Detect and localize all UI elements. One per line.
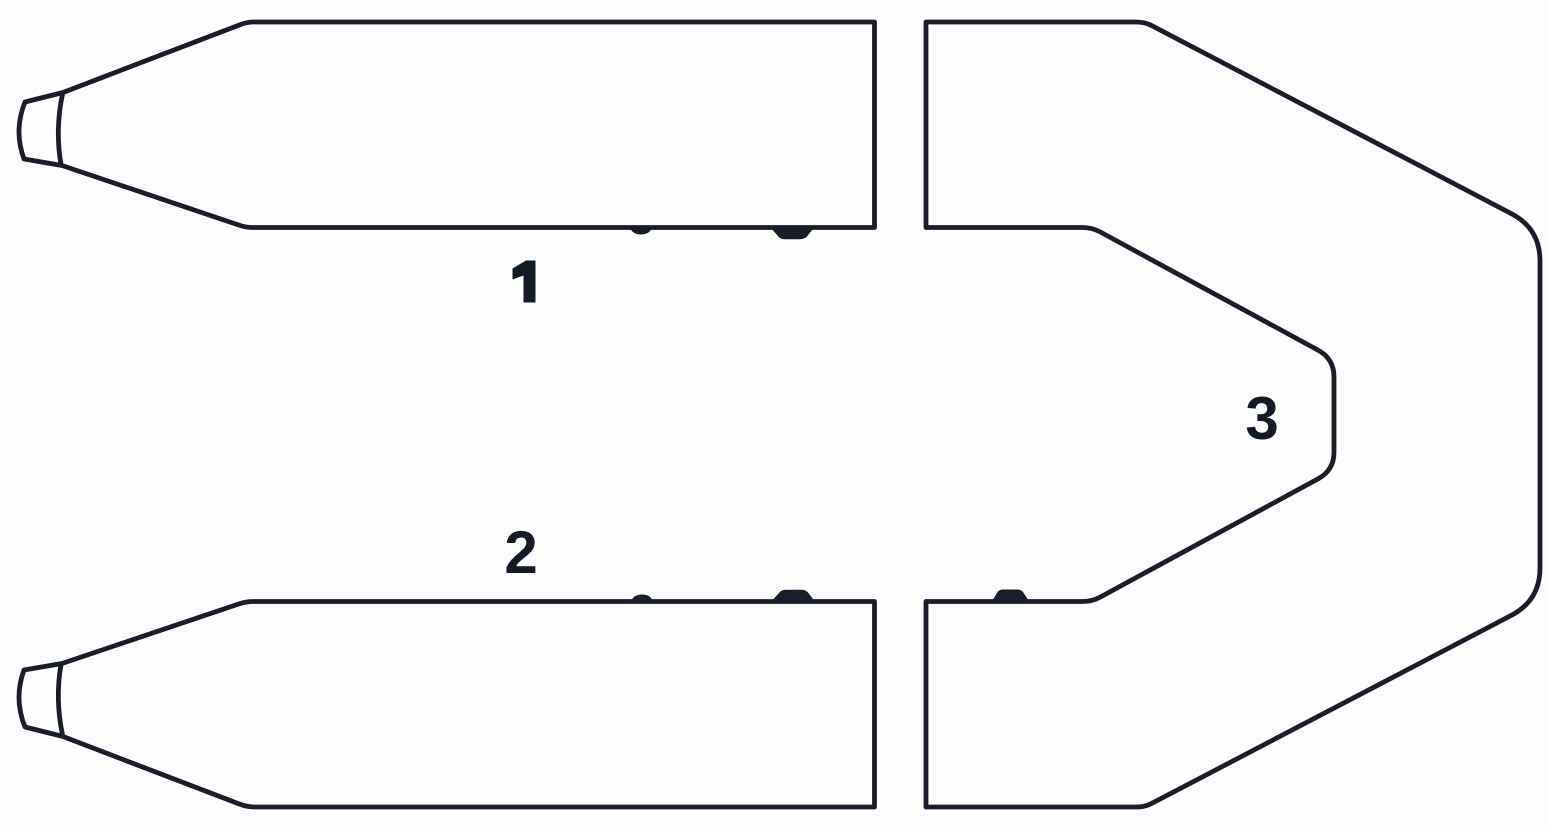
svg-text:2: 2 bbox=[504, 519, 537, 586]
svg-text:3: 3 bbox=[1245, 385, 1278, 452]
